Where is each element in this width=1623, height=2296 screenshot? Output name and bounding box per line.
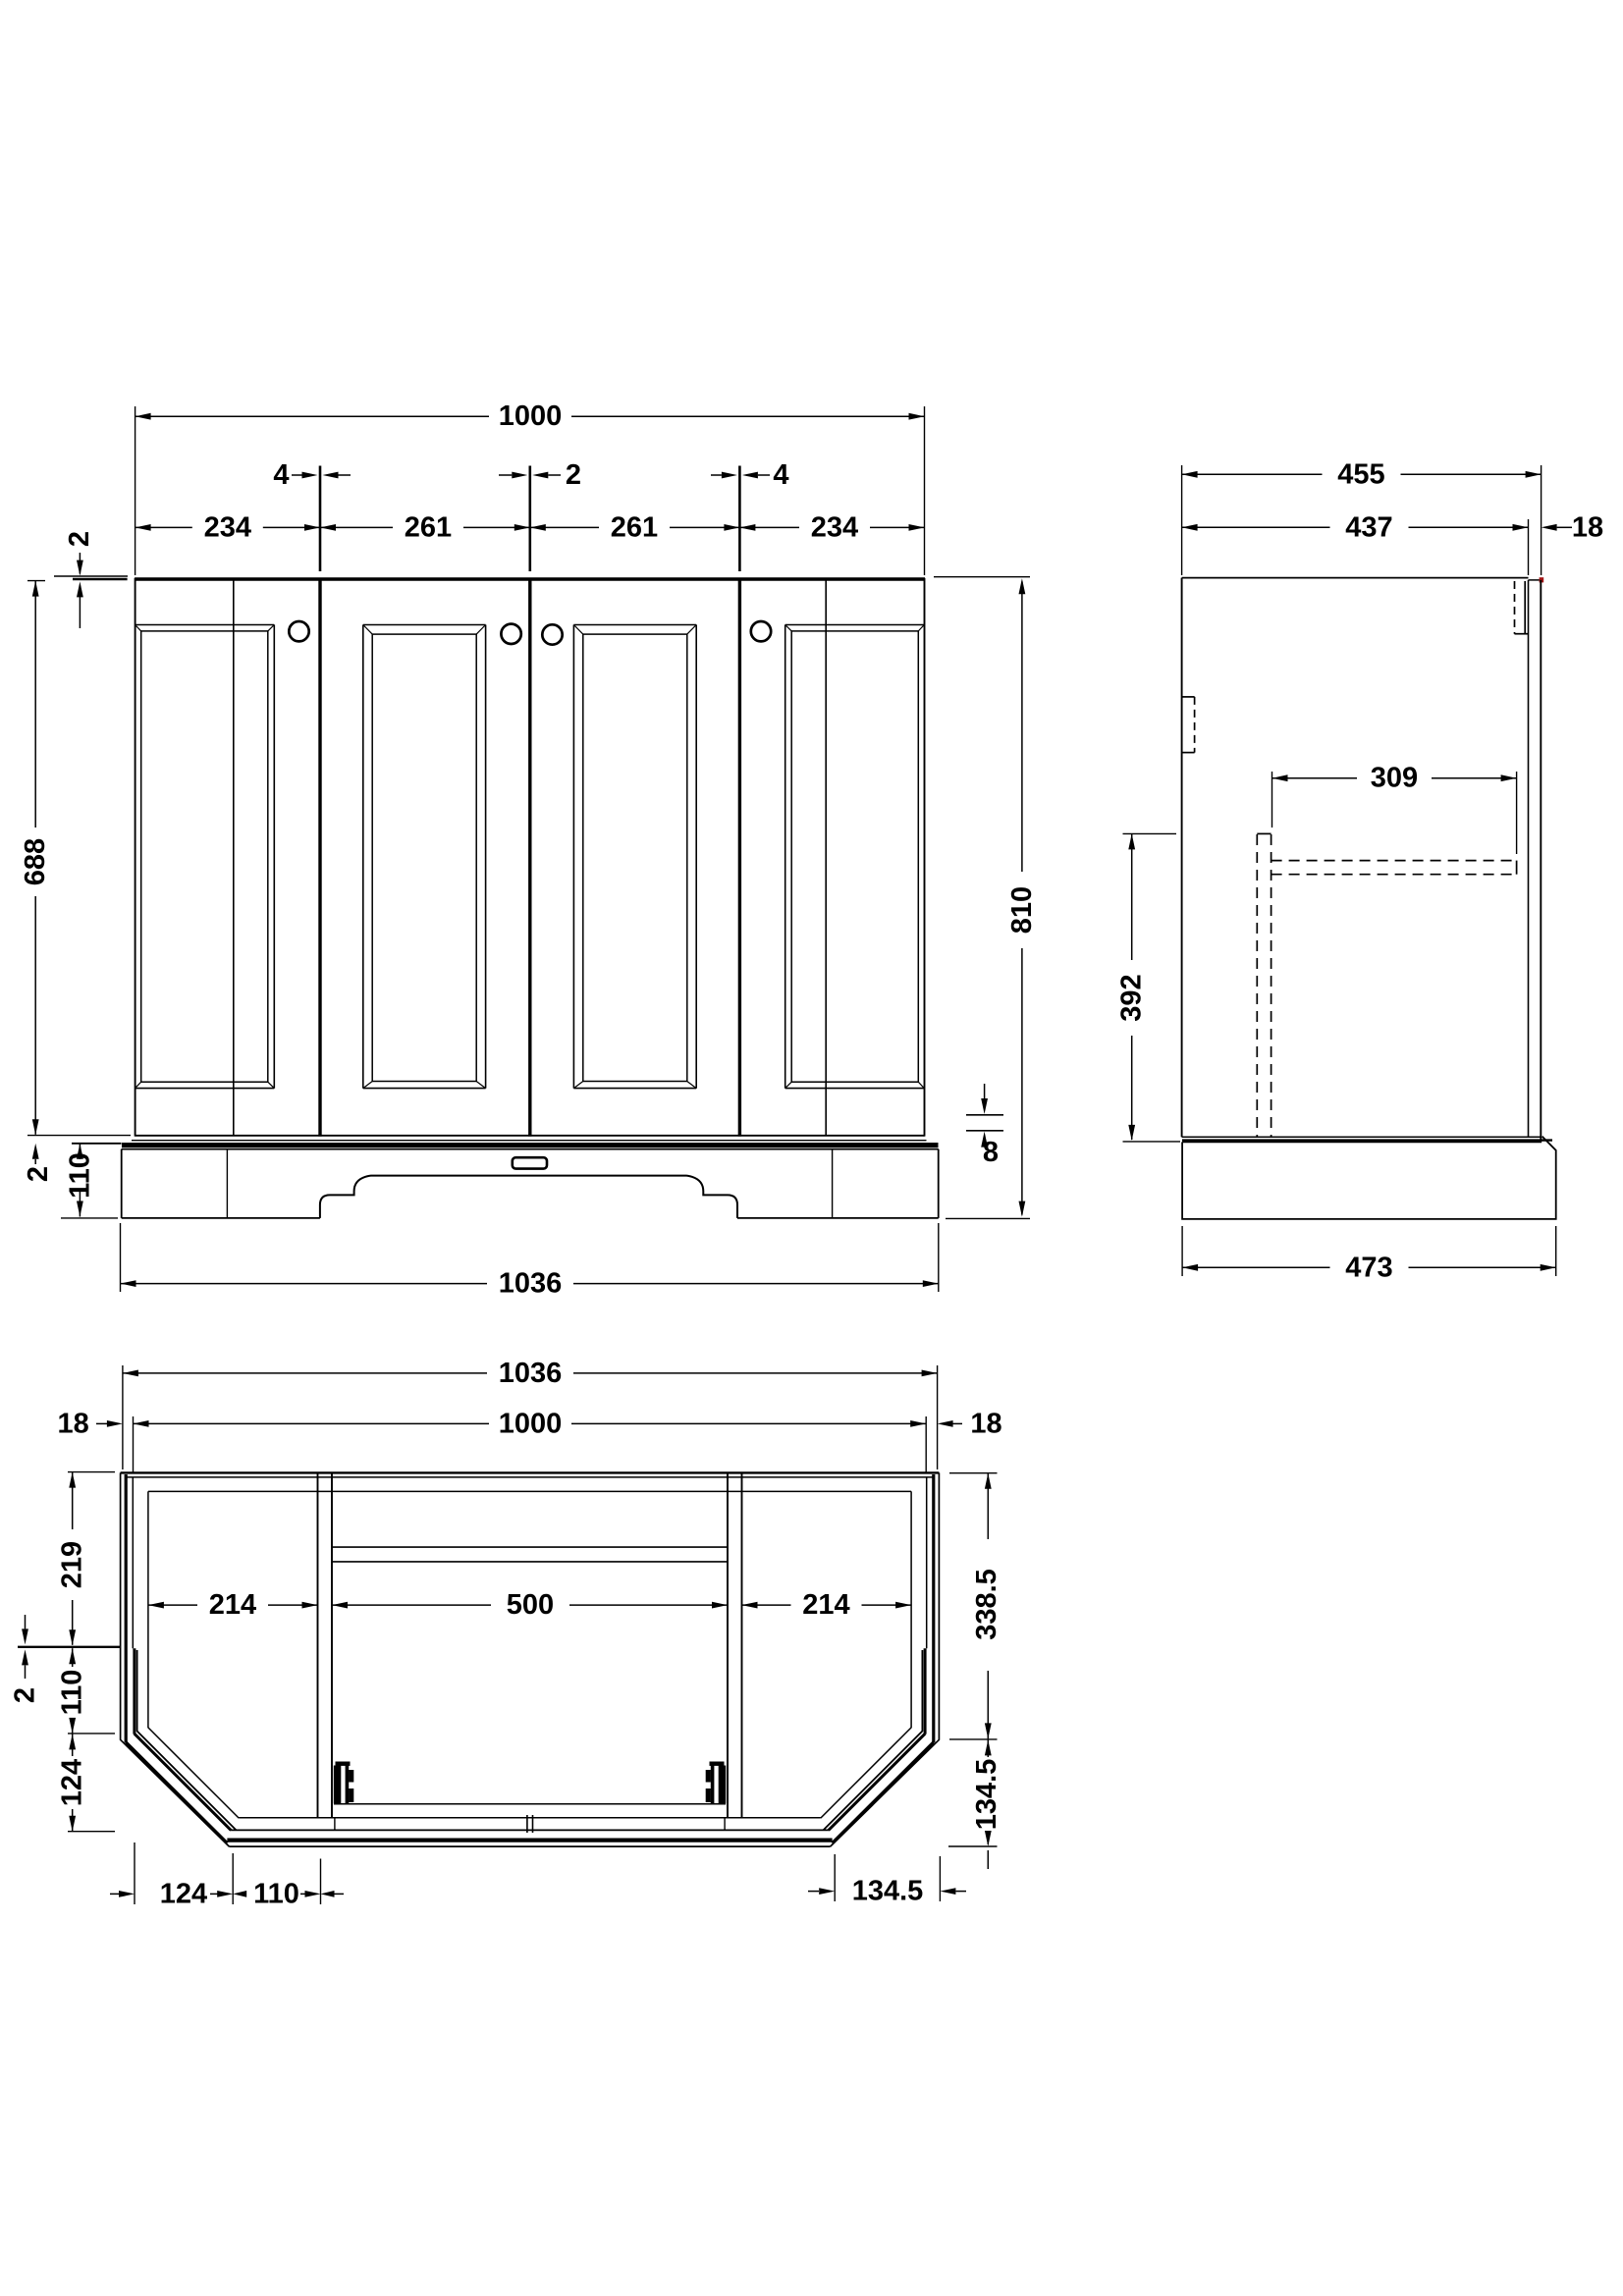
svg-text:500: 500 (507, 1589, 554, 1621)
svg-text:688: 688 (20, 838, 51, 885)
svg-text:219: 219 (57, 1541, 88, 1588)
svg-text:18: 18 (57, 1408, 88, 1439)
svg-text:2: 2 (10, 1687, 41, 1703)
svg-text:1036: 1036 (499, 1268, 563, 1300)
svg-text:110: 110 (64, 1152, 95, 1199)
svg-text:134.5: 134.5 (852, 1876, 924, 1907)
svg-text:392: 392 (1116, 974, 1148, 1021)
svg-text:2: 2 (566, 459, 581, 491)
svg-text:8: 8 (983, 1137, 999, 1168)
svg-text:338.5: 338.5 (971, 1569, 1002, 1640)
svg-text:234: 234 (811, 511, 858, 543)
svg-text:1000: 1000 (499, 400, 563, 432)
svg-text:309: 309 (1371, 763, 1418, 794)
svg-text:4: 4 (273, 459, 289, 491)
svg-text:134.5: 134.5 (971, 1759, 1002, 1831)
svg-text:214: 214 (802, 1589, 849, 1621)
svg-text:1000: 1000 (499, 1408, 563, 1439)
svg-text:261: 261 (405, 511, 452, 543)
svg-text:214: 214 (209, 1589, 256, 1621)
svg-text:18: 18 (970, 1408, 1001, 1439)
svg-text:18: 18 (1572, 511, 1603, 543)
svg-text:110: 110 (253, 1878, 299, 1909)
svg-text:261: 261 (611, 511, 658, 543)
svg-text:810: 810 (1006, 886, 1038, 934)
svg-text:2: 2 (64, 531, 95, 547)
svg-text:234: 234 (204, 511, 251, 543)
svg-text:1036: 1036 (499, 1358, 563, 1389)
svg-text:124: 124 (57, 1759, 88, 1806)
svg-text:473: 473 (1345, 1252, 1392, 1283)
svg-text:455: 455 (1337, 458, 1384, 490)
svg-text:4: 4 (773, 459, 788, 491)
svg-text:110: 110 (57, 1670, 88, 1716)
svg-text:124: 124 (160, 1878, 207, 1909)
svg-text:437: 437 (1345, 511, 1392, 543)
svg-text:2: 2 (23, 1166, 54, 1182)
